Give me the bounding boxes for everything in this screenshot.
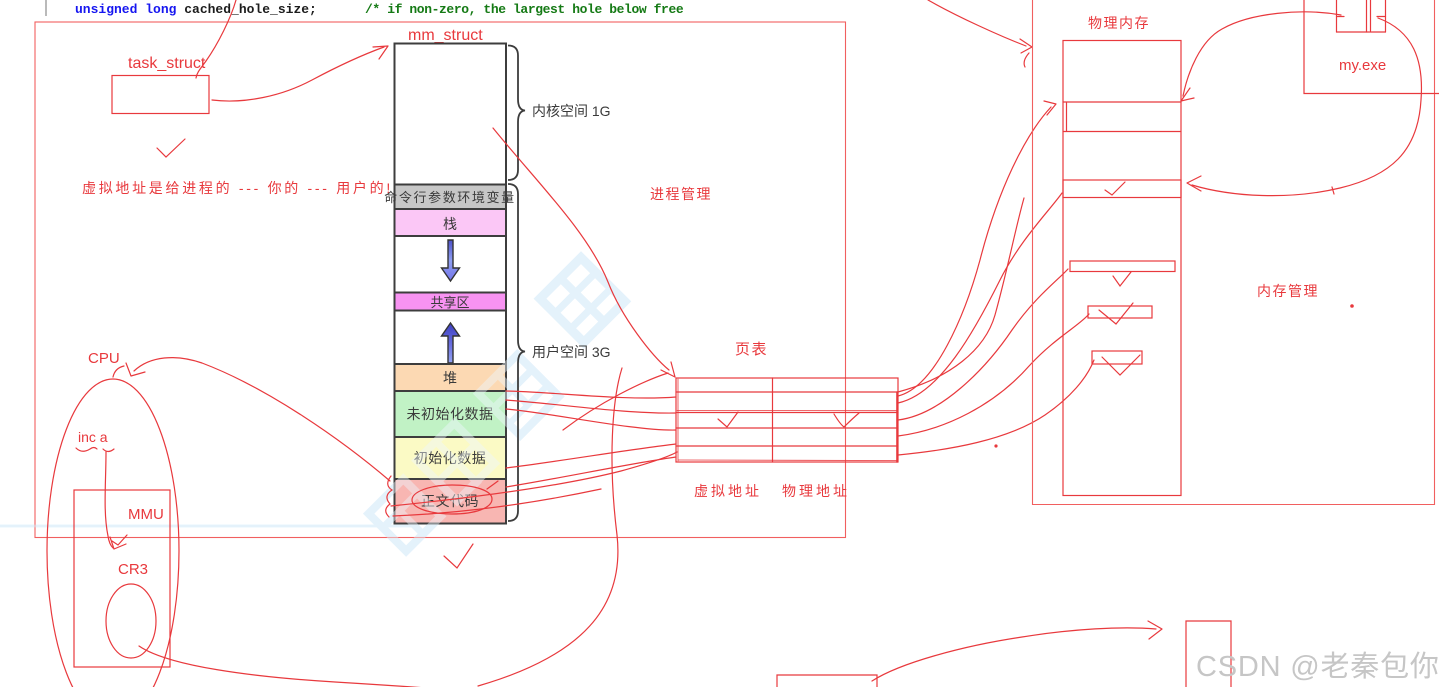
svg-text:MMU: MMU [128,506,164,523]
svg-text:物理内存: 物理内存 [1088,15,1150,31]
svg-text:虚拟地址是给进程的 --- 你的 --- 用户的!: 虚拟地址是给进程的 --- 你的 --- 用户的! [82,180,393,196]
svg-text:CSDN @老秦包你会: CSDN @老秦包你会 [1196,650,1439,683]
svg-text:虚拟地址: 虚拟地址 [694,483,762,499]
svg-text:unsigned long cached_hole_size: unsigned long cached_hole_size; [75,2,317,17]
svg-text:命令行参数环境变量: 命令行参数环境变量 [384,190,515,205]
svg-text:进程管理: 进程管理 [650,186,712,202]
svg-text:CPU: CPU [88,350,120,367]
svg-text:用户空间 3G: 用户空间 3G [532,344,611,360]
svg-text:inc a: inc a [78,429,108,445]
svg-text:共享区: 共享区 [430,295,469,310]
svg-text:/* if non-zero, the largest ho: /* if non-zero, the largest hole below f… [365,2,684,17]
svg-text:task_struct: task_struct [128,55,206,72]
svg-text:内核空间 1G: 内核空间 1G [532,103,611,119]
svg-text:未初始化数据: 未初始化数据 [407,406,494,422]
svg-text:内存管理: 内存管理 [1257,283,1319,299]
svg-text:物理地址: 物理地址 [782,483,850,499]
svg-text:页表: 页表 [735,341,768,358]
svg-text:CR3: CR3 [118,561,148,578]
svg-text:my.exe: my.exe [1339,57,1386,74]
svg-text:堆: 堆 [443,370,457,386]
svg-text:mm_struct: mm_struct [408,27,483,44]
svg-text:栈: 栈 [443,216,457,232]
